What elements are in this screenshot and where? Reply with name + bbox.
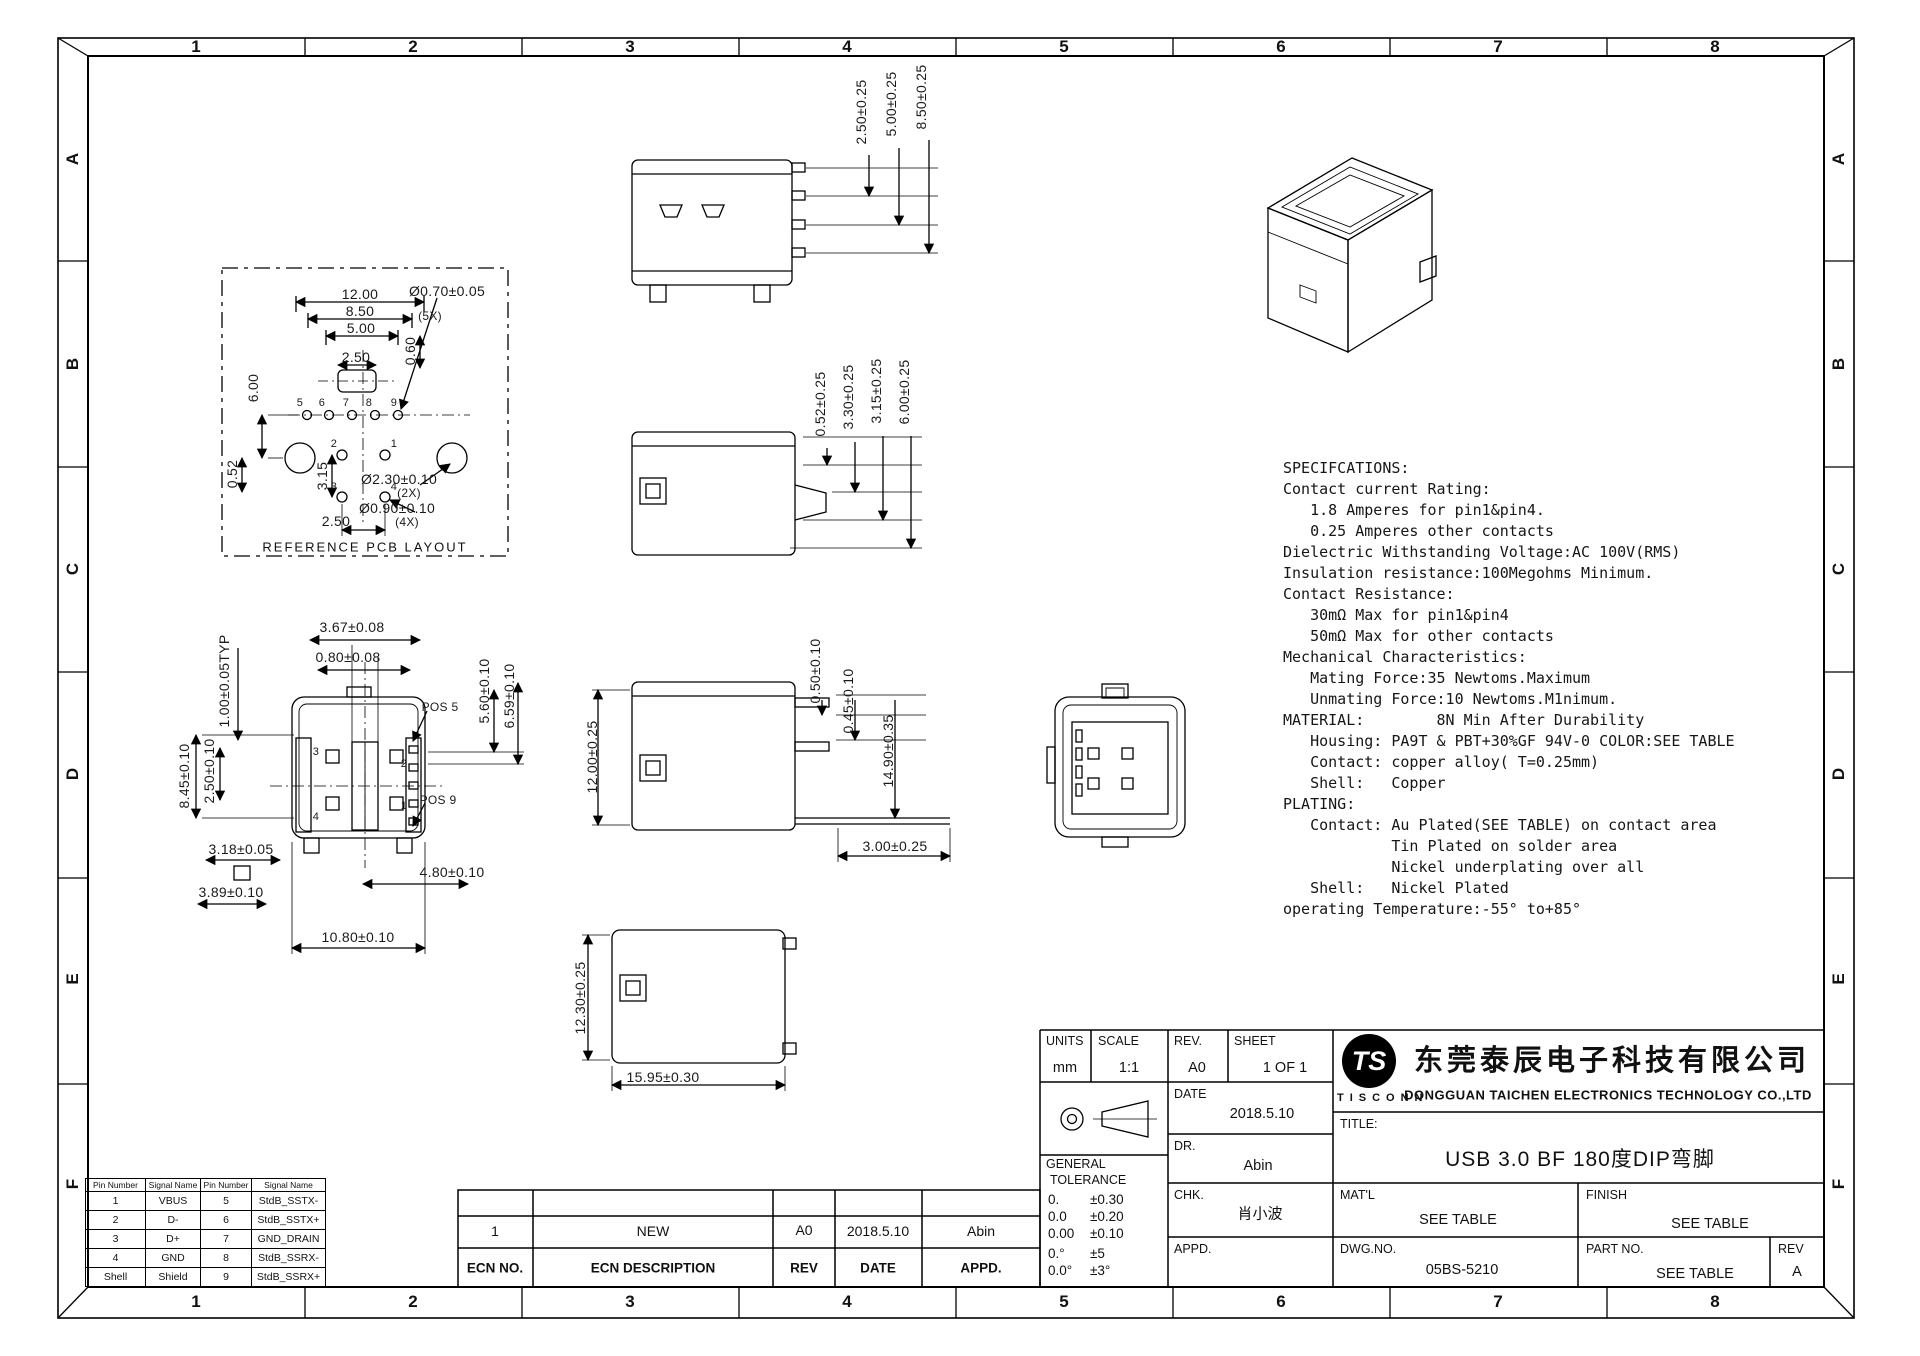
tolerance-row: 0.00 xyxy=(1048,1226,1074,1241)
scale-label: SCALE xyxy=(1098,1034,1139,1048)
spec-line: Nickel underplating over all xyxy=(1283,857,1735,878)
spec-line: Mechanical Characteristics: xyxy=(1283,647,1735,668)
rev-value: A0 xyxy=(1188,1060,1206,1076)
dim-label: Ø0.90±0.10 xyxy=(359,500,435,516)
table-row: 4 GND 8 StdB_SSRX- xyxy=(86,1249,326,1268)
rev-label: REV. xyxy=(1174,1034,1202,1048)
date-label: DATE xyxy=(1174,1087,1206,1101)
tolerance-row: ±3° xyxy=(1090,1263,1110,1278)
dim-label: 0.52±0.25 xyxy=(812,372,828,437)
ecn-rev-value: A0 xyxy=(795,1222,812,1238)
col-label: 2 xyxy=(408,37,417,57)
pin-cell: 9 xyxy=(201,1268,252,1287)
spec-line: SPECIFCATIONS: xyxy=(1283,458,1735,479)
engineering-drawing-sheet: 1 2 3 4 5 6 7 8 1 2 3 4 5 6 7 8 A B C D … xyxy=(0,0,1920,1356)
pin-number-label: 2 xyxy=(401,758,407,770)
view-isometric xyxy=(1268,158,1436,352)
pin-number-label: 5 xyxy=(297,397,303,409)
row-label: B xyxy=(63,358,83,370)
pin-cell: 4 xyxy=(86,1249,146,1268)
pin-number-label: 9 xyxy=(391,397,397,409)
pin-assignment-table: Pin Number Signal Name Pin Number Signal… xyxy=(85,1178,326,1287)
tolerance-row: ±5 xyxy=(1090,1246,1105,1261)
row-label: E xyxy=(1829,973,1849,984)
tolerance-row: 0.0° xyxy=(1048,1263,1072,1278)
col-label: 2 xyxy=(408,1292,417,1312)
col-label: 8 xyxy=(1710,37,1719,57)
dim-label: 3.30±0.25 xyxy=(840,365,856,430)
dim-label: 3.89±0.10 xyxy=(199,884,264,900)
view-side-bottom xyxy=(582,930,796,1091)
tolerance-row: ±0.20 xyxy=(1090,1209,1124,1224)
rev2-label: REV xyxy=(1778,1242,1804,1256)
dim-label: 8.50 xyxy=(346,303,374,319)
row-label: E xyxy=(63,973,83,984)
tolerance-row: 0.° xyxy=(1048,1246,1065,1261)
pin-table-header: Signal Name xyxy=(146,1179,201,1192)
col-label: 8 xyxy=(1710,1292,1719,1312)
pin-number-label: 3 xyxy=(331,481,337,493)
spec-line: Mating Force:35 Newtoms.Maximum xyxy=(1283,668,1735,689)
ecn-description-value: NEW xyxy=(637,1223,670,1239)
spec-line: 30mΩ Max for pin1&pin4 xyxy=(1283,605,1735,626)
spec-line: Shell: Copper xyxy=(1283,773,1735,794)
dim-label: 4.80±0.10 xyxy=(420,864,485,880)
dim-label: 8.45±0.10 xyxy=(176,744,192,809)
general-label: GENERAL xyxy=(1046,1157,1106,1171)
scale-value: 1:1 xyxy=(1119,1060,1139,1076)
row-label: C xyxy=(63,563,83,575)
table-row: 3 D+ 7 GND_DRAIN xyxy=(86,1230,326,1249)
dwg-no-value: 05BS-5210 xyxy=(1426,1262,1499,1278)
spec-line: Contact: copper alloy( T=0.25mm) xyxy=(1283,752,1735,773)
spec-line: operating Temperature:-55° to+85° xyxy=(1283,899,1735,920)
spec-line: Dielectric Withstanding Voltage:AC 100V(… xyxy=(1283,542,1735,563)
spec-line: Unmating Force:10 Newtoms.M1nimum. xyxy=(1283,689,1735,710)
pin-table-header: Signal Name xyxy=(252,1179,326,1192)
ecn-appd-value: Abin xyxy=(967,1223,995,1239)
tolerance-row: ±0.30 xyxy=(1090,1192,1124,1207)
dim-label: 15.95±0.30 xyxy=(627,1069,700,1085)
pin-cell: 7 xyxy=(201,1230,252,1249)
row-label: F xyxy=(63,1179,83,1189)
dim-label: 2.50±0.25 xyxy=(853,80,869,145)
dim-label: 6.00 xyxy=(245,374,261,402)
sheet-label: SHEET xyxy=(1234,1034,1276,1048)
rev2-value: A xyxy=(1792,1264,1802,1280)
spec-line: Housing: PA9T & PBT+30%GF 94V-0 COLOR:SE… xyxy=(1283,731,1735,752)
part-no-value: SEE TABLE xyxy=(1656,1266,1734,1282)
ecn-no-header: ECN NO. xyxy=(467,1261,523,1276)
pin-table-header: Pin Number xyxy=(86,1179,146,1192)
spec-line: Contact current Rating: xyxy=(1283,479,1735,500)
pin-cell: StdB_SSRX+ xyxy=(252,1268,326,1287)
pin-cell: 8 xyxy=(201,1249,252,1268)
matl-label: MAT'L xyxy=(1340,1188,1375,1202)
spec-line: Contact Resistance: xyxy=(1283,584,1735,605)
col-label: 1 xyxy=(191,37,200,57)
part-no-label: PART NO. xyxy=(1586,1242,1644,1256)
pin-number-label: 1 xyxy=(401,800,407,812)
units-label: UNITS xyxy=(1046,1034,1084,1048)
ecn-date-value: 2018.5.10 xyxy=(847,1223,909,1239)
col-label: 3 xyxy=(625,37,634,57)
pin-cell: StdB_SSTX+ xyxy=(252,1211,326,1230)
dwg-no-label: DWG.NO. xyxy=(1340,1242,1396,1256)
spec-line: 1.8 Amperes for pin1&pin4. xyxy=(1283,500,1735,521)
col-label: 5 xyxy=(1059,37,1068,57)
pin-cell: VBUS xyxy=(146,1192,201,1211)
dim-label: 3.18±0.05 xyxy=(209,841,274,857)
pin-table-header: Pin Number xyxy=(201,1179,252,1192)
dim-label: 3.67±0.08 xyxy=(320,619,385,635)
tolerance-label: TOLERANCE xyxy=(1050,1173,1126,1187)
row-label: D xyxy=(1829,768,1849,780)
pin-cell: D+ xyxy=(146,1230,201,1249)
spec-line: PLATING: xyxy=(1283,794,1735,815)
company-logo-icon: TS xyxy=(1342,1034,1396,1088)
col-label: 3 xyxy=(625,1292,634,1312)
dim-label: 12.30±0.25 xyxy=(572,962,588,1035)
pin-number-label: 4 xyxy=(313,811,319,823)
appd-label: APPD. xyxy=(1174,1242,1212,1256)
spec-line: Shell: Nickel Plated xyxy=(1283,878,1735,899)
row-label: B xyxy=(1829,358,1849,370)
ecn-description-header: ECN DESCRIPTION xyxy=(591,1261,716,1276)
row-label: A xyxy=(1829,153,1849,165)
tolerance-row: 0. xyxy=(1048,1192,1059,1207)
pin-cell: D- xyxy=(146,1211,201,1230)
col-label: 6 xyxy=(1276,1292,1285,1312)
pin-cell: StdB_SSRX- xyxy=(252,1249,326,1268)
pin-cell: 2 xyxy=(86,1211,146,1230)
row-label: F xyxy=(1829,1179,1849,1189)
specifications-block: SPECIFCATIONS: Contact current Rating: 1… xyxy=(1283,458,1735,920)
dim-label: 12.00 xyxy=(342,286,379,302)
dim-label: 6.00±0.25 xyxy=(896,360,912,425)
view-rear-face xyxy=(1047,684,1185,847)
pin-cell: 5 xyxy=(201,1192,252,1211)
dim-label: (5X) xyxy=(418,309,442,323)
dim-label: 0.52 xyxy=(224,460,240,488)
spec-line: 0.25 Amperes other contacts xyxy=(1283,521,1735,542)
row-label: C xyxy=(1829,563,1849,575)
dr-label: DR. xyxy=(1174,1139,1196,1153)
ecn-appd-header: APPD. xyxy=(960,1261,1001,1276)
projection-symbol-icon xyxy=(1061,1101,1157,1137)
dim-label: 3.15±0.25 xyxy=(868,359,884,424)
chk-value: 肖小波 xyxy=(1237,1203,1282,1224)
matl-value: SEE TABLE xyxy=(1419,1212,1497,1228)
table-row: 1 VBUS 5 StdB_SSTX- xyxy=(86,1192,326,1211)
tolerance-row: ±0.10 xyxy=(1090,1226,1124,1241)
view-side-lower xyxy=(592,682,950,862)
ecn-rev-header: REV xyxy=(790,1261,818,1276)
dim-label: 10.80±0.10 xyxy=(322,929,395,945)
dim-label: 5.00 xyxy=(347,320,375,336)
dim-label: 2.50±0.10 xyxy=(201,739,217,804)
ecn-table-grid xyxy=(458,1190,1040,1287)
pin-number-label: 2 xyxy=(331,438,337,450)
pin-number-label: 3 xyxy=(313,746,319,758)
spec-line: Insulation resistance:100Megohms Minimum… xyxy=(1283,563,1735,584)
pos-label: POS 5 xyxy=(422,700,459,714)
dim-label: 0.60 xyxy=(402,337,418,365)
dim-label: 0.80±0.08 xyxy=(316,649,381,665)
pin-cell: 6 xyxy=(201,1211,252,1230)
col-label: 4 xyxy=(842,1292,851,1312)
ecn-date-header: DATE xyxy=(860,1261,896,1276)
finish-value: SEE TABLE xyxy=(1671,1216,1749,1232)
dim-label: 0.50±0.10 xyxy=(807,639,823,704)
pin-cell: Shield xyxy=(146,1268,201,1287)
pin-number-label: 6 xyxy=(319,397,325,409)
dim-label: 12.00±0.25 xyxy=(584,721,600,794)
col-label: 4 xyxy=(842,37,851,57)
dim-label: 3.15 xyxy=(314,462,330,490)
pin-number-label: 1 xyxy=(391,438,397,450)
table-row: 2 D- 6 StdB_SSTX+ xyxy=(86,1211,326,1230)
spec-line: MATERIAL: 8N Min After Durability xyxy=(1283,710,1735,731)
view-side-top xyxy=(632,140,938,302)
col-label: 1 xyxy=(191,1292,200,1312)
ecn-no-value: 1 xyxy=(491,1223,499,1239)
pin-cell: Shell xyxy=(86,1268,146,1287)
dim-label: 14.90±0.35 xyxy=(880,715,896,788)
sheet-value: 1 OF 1 xyxy=(1263,1060,1307,1076)
row-label: A xyxy=(63,153,83,165)
pin-number-label: 7 xyxy=(343,397,349,409)
date-value: 2018.5.10 xyxy=(1230,1106,1295,1122)
dim-label: 2.50 xyxy=(342,349,370,365)
row-label: D xyxy=(63,768,83,780)
col-label: 5 xyxy=(1059,1292,1068,1312)
col-label: 7 xyxy=(1493,1292,1502,1312)
col-label: 6 xyxy=(1276,37,1285,57)
chk-label: CHK. xyxy=(1174,1188,1204,1202)
dim-label: 6.59±0.10 xyxy=(501,664,517,729)
dr-value: Abin xyxy=(1243,1158,1272,1174)
dim-label: 1.00±0.05TYP xyxy=(216,634,232,727)
pin-number-label: 8 xyxy=(366,397,372,409)
dim-label: 2.50 xyxy=(322,513,350,529)
dim-label: 3.00±0.25 xyxy=(863,838,928,854)
dim-label: 5.00±0.25 xyxy=(883,72,899,137)
spec-line: 50mΩ Max for other contacts xyxy=(1283,626,1735,647)
pin-cell: 3 xyxy=(86,1230,146,1249)
pin-cell: StdB_SSTX- xyxy=(252,1192,326,1211)
view-side-middle xyxy=(632,432,922,555)
dim-label: Ø2.30±0.10 xyxy=(361,471,437,487)
tolerance-row: 0.0 xyxy=(1048,1209,1067,1224)
company-name-cn: 东莞泰辰电子科技有限公司 xyxy=(1414,1037,1810,1079)
pin-cell: GND xyxy=(146,1249,201,1268)
company-name-en: DONGGUAN TAICHEN ELECTRONICS TECHNOLOGY … xyxy=(1404,1088,1812,1103)
title-value: USB 3.0 BF 180度DIP弯脚 xyxy=(1445,1143,1715,1173)
view-front-face xyxy=(196,640,524,954)
spec-line: Tin Plated on solder area xyxy=(1283,836,1735,857)
dim-label: Ø0.70±0.05 xyxy=(409,283,485,299)
pos-label: POS 9 xyxy=(420,793,457,807)
dim-label: 8.50±0.25 xyxy=(913,65,929,130)
units-value: mm xyxy=(1053,1060,1077,1076)
dim-label: (4X) xyxy=(395,515,419,529)
pcb-layout-caption: REFERENCE PCB LAYOUT xyxy=(262,540,467,555)
title-label: TITLE: xyxy=(1340,1117,1378,1131)
pin-cell: 1 xyxy=(86,1192,146,1211)
finish-label: FINISH xyxy=(1586,1188,1627,1202)
dim-label: 0.45±0.10 xyxy=(840,669,856,734)
spec-line: Contact: Au Plated(SEE TABLE) on contact… xyxy=(1283,815,1735,836)
table-row: Shell Shield 9 StdB_SSRX+ xyxy=(86,1268,326,1287)
pin-number-label: 4 xyxy=(391,481,397,493)
dim-label: 5.60±0.10 xyxy=(476,659,492,724)
col-label: 7 xyxy=(1493,37,1502,57)
pin-cell: GND_DRAIN xyxy=(252,1230,326,1249)
dim-label: (2X) xyxy=(397,486,421,500)
